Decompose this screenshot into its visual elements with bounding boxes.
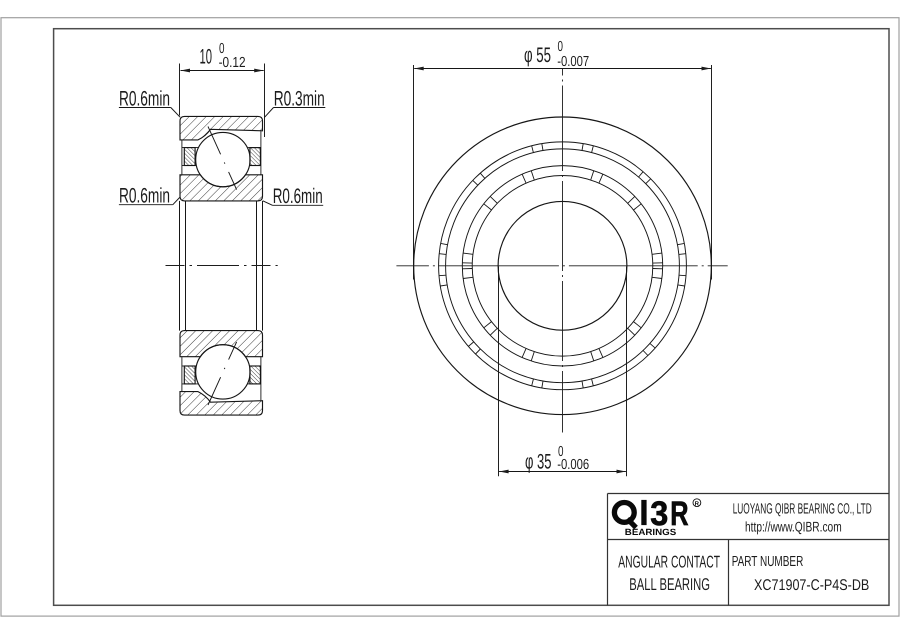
svg-text:R0.6min: R0.6min	[273, 185, 323, 208]
svg-text:LUOYANG QIBR BEARING CO., LTD: LUOYANG QIBR BEARING CO., LTD	[733, 501, 872, 517]
svg-text:R0.6min: R0.6min	[119, 87, 170, 110]
svg-text:ANGULAR CONTACT: ANGULAR CONTACT	[618, 552, 720, 571]
svg-text:R0.6min: R0.6min	[119, 185, 170, 208]
svg-text:BALL BEARING: BALL BEARING	[629, 575, 710, 594]
svg-text:-0.007: -0.007	[557, 54, 589, 70]
svg-text:XC71907-C-P4S-DB: XC71907-C-P4S-DB	[754, 577, 869, 594]
svg-text:-0.12: -0.12	[219, 55, 246, 71]
svg-text:BEARINGS: BEARINGS	[625, 527, 676, 537]
svg-text:0: 0	[558, 39, 564, 55]
svg-text:φ 55: φ 55	[524, 44, 551, 67]
svg-text:10: 10	[200, 46, 213, 69]
svg-text:PART NUMBER: PART NUMBER	[732, 554, 804, 570]
svg-text:http://www.QIBR.com: http://www.QIBR.com	[745, 519, 842, 535]
svg-text:R: R	[695, 500, 700, 507]
svg-text:R0.3min: R0.3min	[274, 87, 325, 110]
svg-text:φ 35: φ 35	[525, 451, 552, 474]
svg-text:-0.006: -0.006	[557, 457, 589, 473]
